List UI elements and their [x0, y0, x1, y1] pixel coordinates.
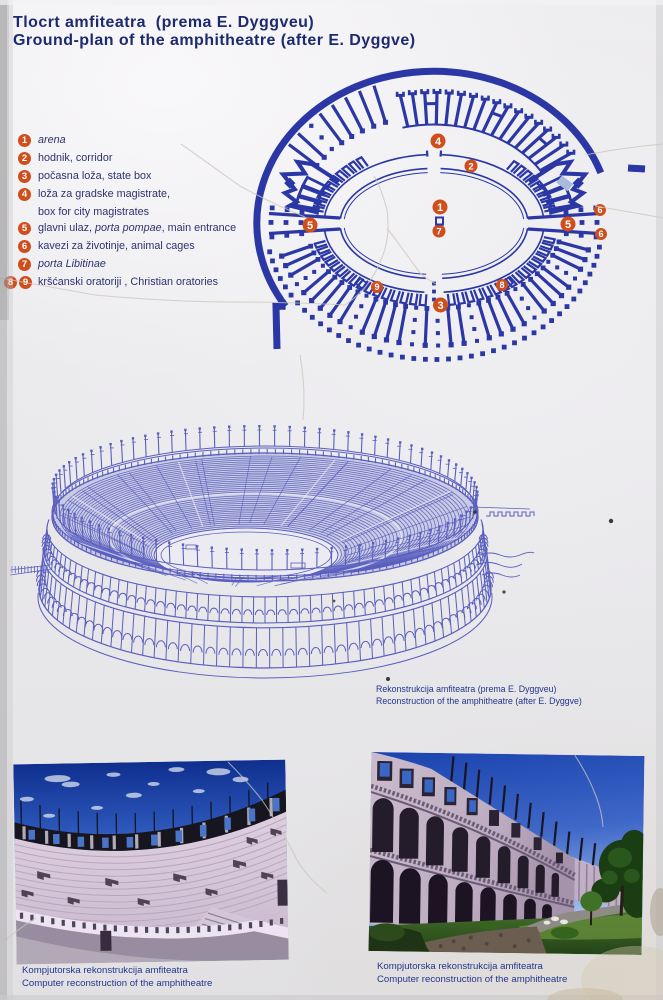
- svg-text:8: 8: [499, 280, 504, 290]
- svg-text:5: 5: [307, 220, 313, 232]
- svg-text:6: 6: [597, 205, 602, 215]
- svg-text:9: 9: [374, 282, 379, 292]
- svg-text:7: 7: [436, 226, 441, 237]
- svg-text:5: 5: [565, 219, 571, 231]
- svg-text:4: 4: [435, 136, 442, 148]
- svg-text:1: 1: [437, 202, 443, 214]
- svg-text:3: 3: [437, 300, 443, 312]
- svg-text:6: 6: [598, 229, 603, 239]
- svg-text:2: 2: [468, 161, 473, 172]
